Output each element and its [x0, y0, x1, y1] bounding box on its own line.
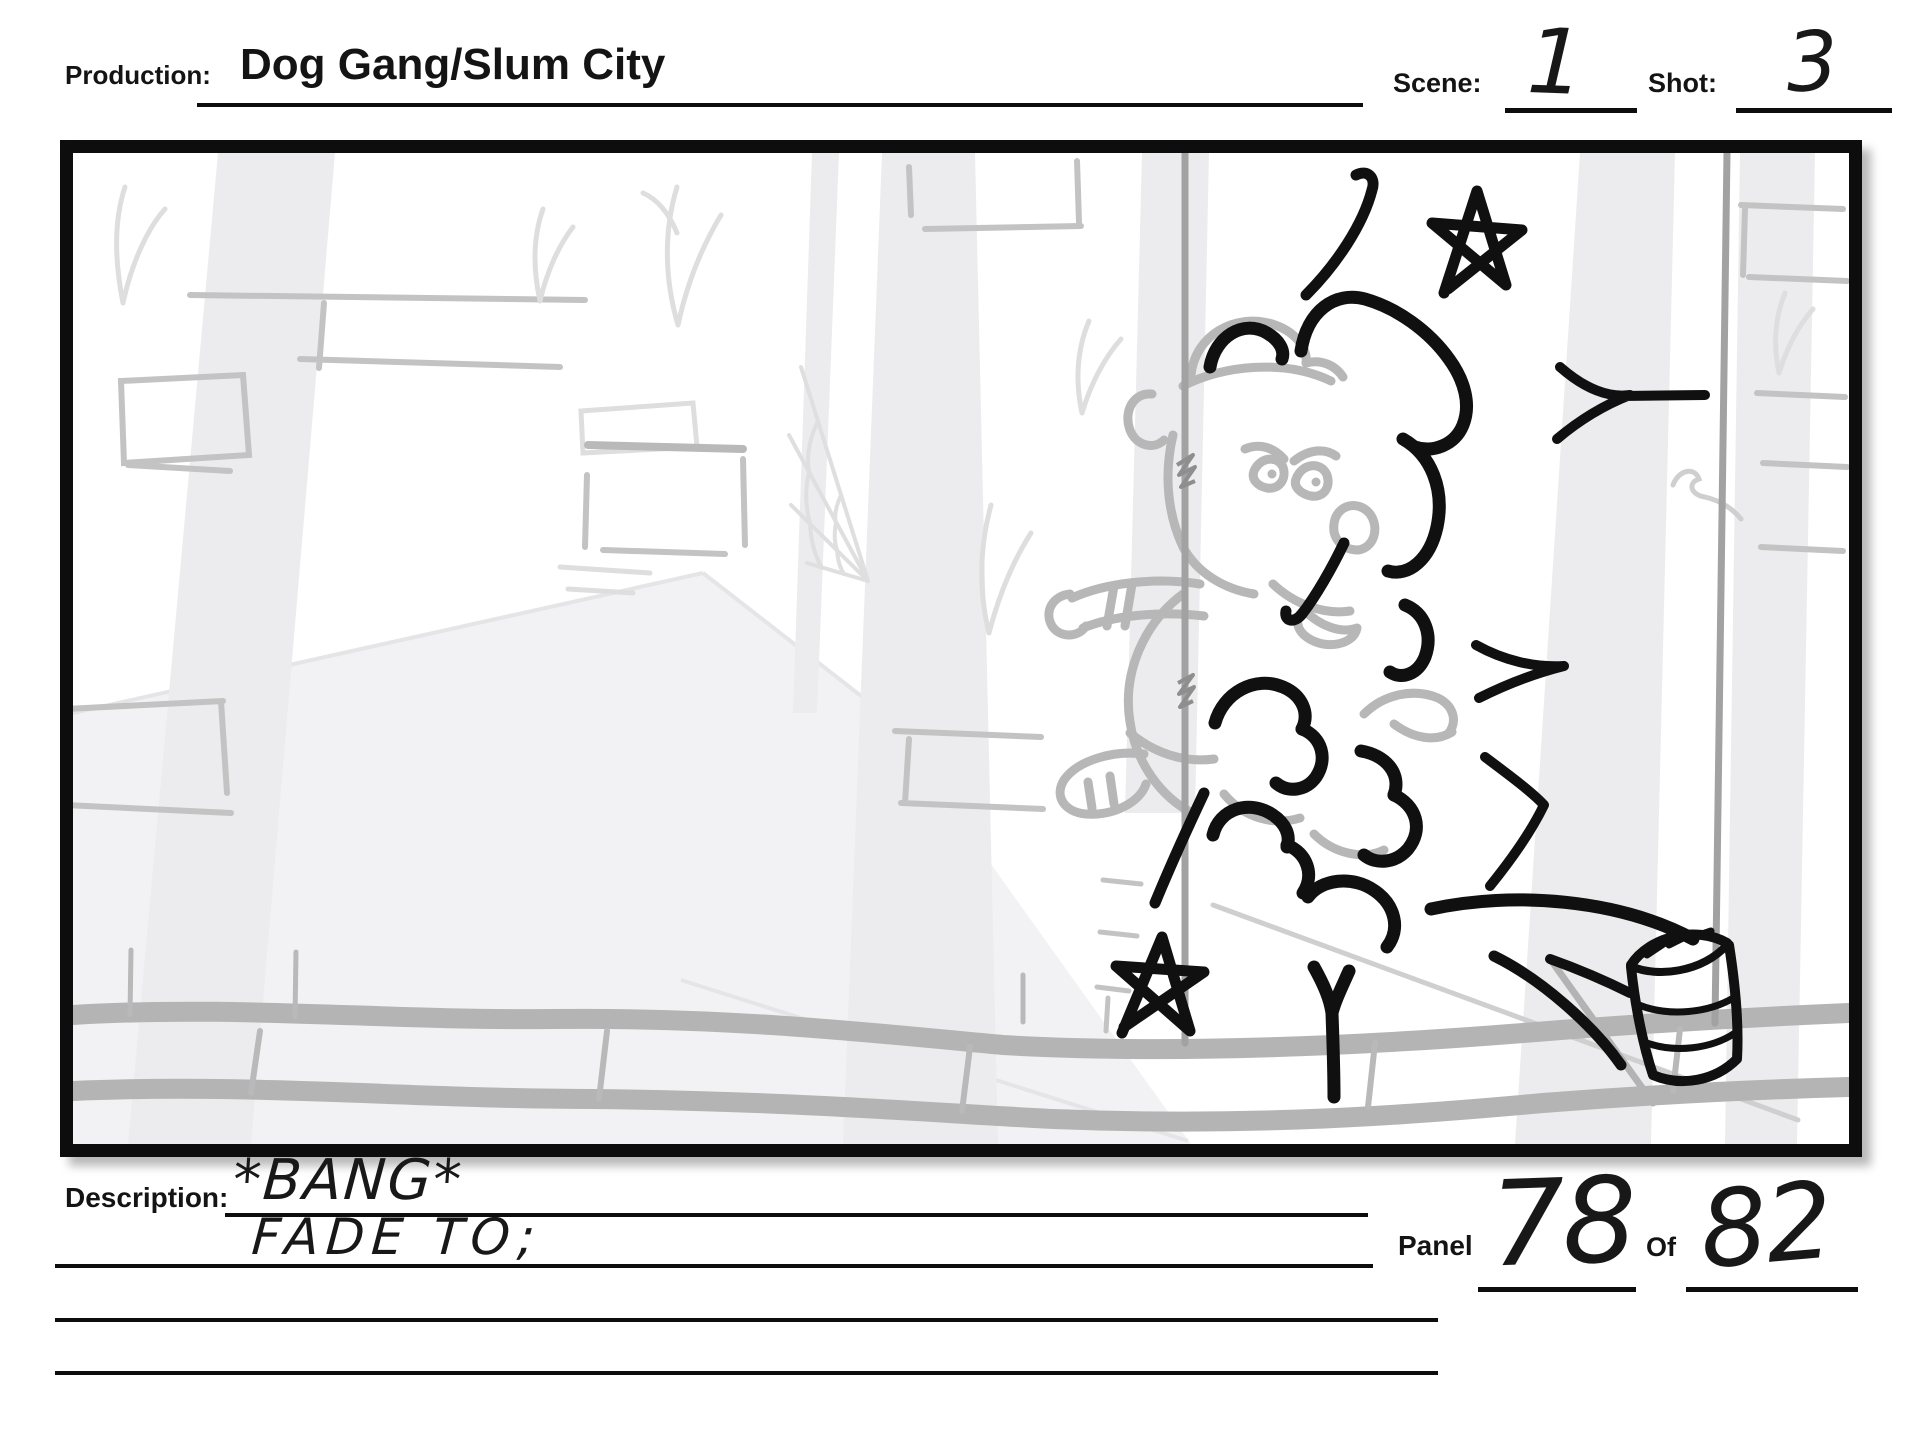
production-title: Dog Gang/Slum City: [240, 40, 665, 90]
description-line-2: [55, 1264, 1373, 1268]
of-underline: [1686, 1287, 1858, 1292]
description-label: Description:: [65, 1182, 228, 1214]
description-text-line2: FADE TO;: [250, 1212, 543, 1262]
scene-label: Scene:: [1393, 68, 1482, 99]
scene-number: 1: [1525, 17, 1585, 109]
panel-total: 82: [1696, 1167, 1836, 1284]
shot-number: 3: [1784, 21, 1840, 106]
scene-underline: [1505, 108, 1637, 113]
panel-underline: [1478, 1287, 1636, 1292]
production-underline: [197, 103, 1363, 107]
production-label: Production:: [65, 60, 211, 91]
storyboard-sheet: Production: Dog Gang/Slum City Scene: 1 …: [0, 0, 1920, 1439]
panel-number: 78: [1488, 1161, 1636, 1284]
description-text-line1: *BANG*: [231, 1153, 465, 1209]
action-star-bottom: [1116, 937, 1204, 1033]
thrown-can: [1631, 931, 1738, 1081]
storyboard-panel-frame: [60, 140, 1862, 1157]
of-label: Of: [1646, 1232, 1676, 1263]
description-line-3: [55, 1318, 1438, 1322]
storyboard-sketch: [73, 153, 1849, 1144]
shot-underline: [1736, 108, 1892, 113]
shot-label: Shot:: [1648, 68, 1717, 99]
action-star-top: [1432, 191, 1522, 293]
description-line-4: [55, 1371, 1438, 1375]
panel-label: Panel: [1398, 1230, 1473, 1262]
